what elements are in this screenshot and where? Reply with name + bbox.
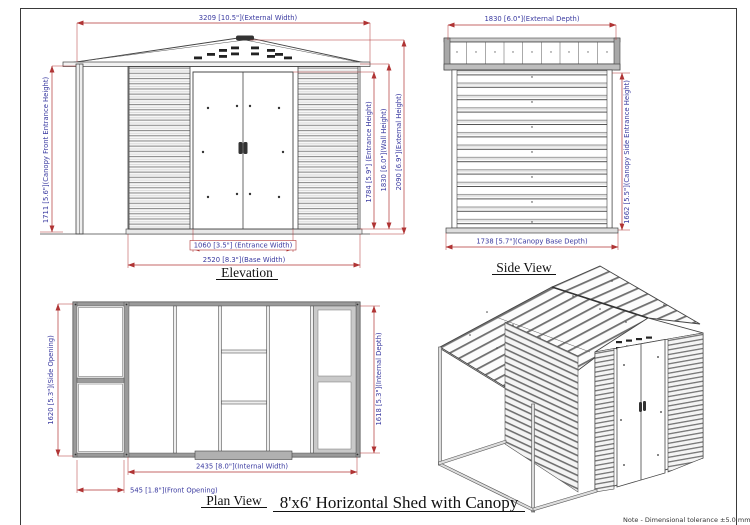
iso-front-panel-left: [595, 349, 614, 493]
double-doors: [193, 72, 293, 229]
dim-base-width: 2520 [8.3"](Base Width): [203, 256, 286, 264]
dim-wall-height: 1830 [6.0"](Wall Height): [380, 108, 388, 191]
technical-drawing: 3209 [10.5"](External Width) 1711 [5.6"]…: [0, 0, 750, 525]
dim-external-height: 2090 [6.9"](External Height): [395, 93, 403, 190]
canopy-roof-edge: [444, 38, 620, 42]
dim-internal-depth: 1618 [5.3"](Internal Depth): [375, 332, 383, 425]
elevation-label: Elevation: [221, 265, 273, 280]
dim-entrance-height: 1784 [5.9"] (Entrance Height): [365, 101, 373, 203]
isometric-view: [439, 266, 704, 512]
elevation-roof: [63, 37, 370, 64]
front-wall-panel-right: [298, 67, 358, 230]
elevation-view: 3209 [10.5"](External Width) 1711 [5.6"]…: [40, 14, 404, 280]
iso-front-panel-right: [668, 333, 703, 472]
plan-view-label: Plan View: [206, 493, 262, 508]
side-view-label: Side View: [496, 260, 552, 275]
door-handle: [239, 142, 243, 154]
canopy-roof-panels: [448, 42, 616, 64]
front-wall-panel-left: [129, 67, 190, 230]
side-wall: [452, 70, 612, 228]
dim-internal-width: 2435 [8.0"](Internal Width): [196, 463, 288, 471]
canopy-bay-cell: [79, 384, 123, 452]
drawing-sheet: 3209 [10.5"](External Width) 1711 [5.6"]…: [0, 0, 750, 525]
dim-canopy-side-entrance-height: 1662 [5.5"](Canopy Side Entrance Height): [623, 80, 631, 224]
dim-canopy-base-depth: 1738 [5.7"](Canopy Base Depth): [476, 238, 588, 246]
elevation-fascia: [63, 62, 370, 67]
side-view: 1830 [6.0"](External Depth) 1662 [5.5"](…: [444, 15, 631, 275]
tolerance-note: Note - Dimensional tolerance ±5.0 mm.: [623, 516, 750, 524]
dim-front-opening: 545 [1.8"](Front Opening): [130, 487, 218, 495]
iso-door-handle: [639, 402, 642, 412]
plan-view: 1620 [5.3"](Side Opening) 1618 [5.3"](In…: [47, 302, 383, 508]
dim-external-depth: 1830 [6.0"](External Depth): [484, 15, 579, 23]
side-base-rail: [446, 228, 618, 233]
canopy-gutter: [444, 64, 620, 70]
dim-external-width: 3209 [10.5"](External Width): [199, 14, 298, 22]
drawing-title: 8'x6' Horizontal Shed with Canopy: [280, 493, 519, 512]
base-rail: [126, 229, 362, 234]
dim-side-opening: 1620 [5.3"](Side Opening): [47, 335, 55, 425]
iso-doors: [617, 340, 665, 488]
canopy-bay-cell: [79, 308, 123, 377]
dim-entrance-width: 1060 [3.5"] (Entrance Width): [194, 242, 293, 250]
door-threshold: [195, 451, 292, 460]
dim-canopy-front-entrance-height: 1711 [5.6"](Canopy Front Entrance Height…: [42, 76, 50, 223]
